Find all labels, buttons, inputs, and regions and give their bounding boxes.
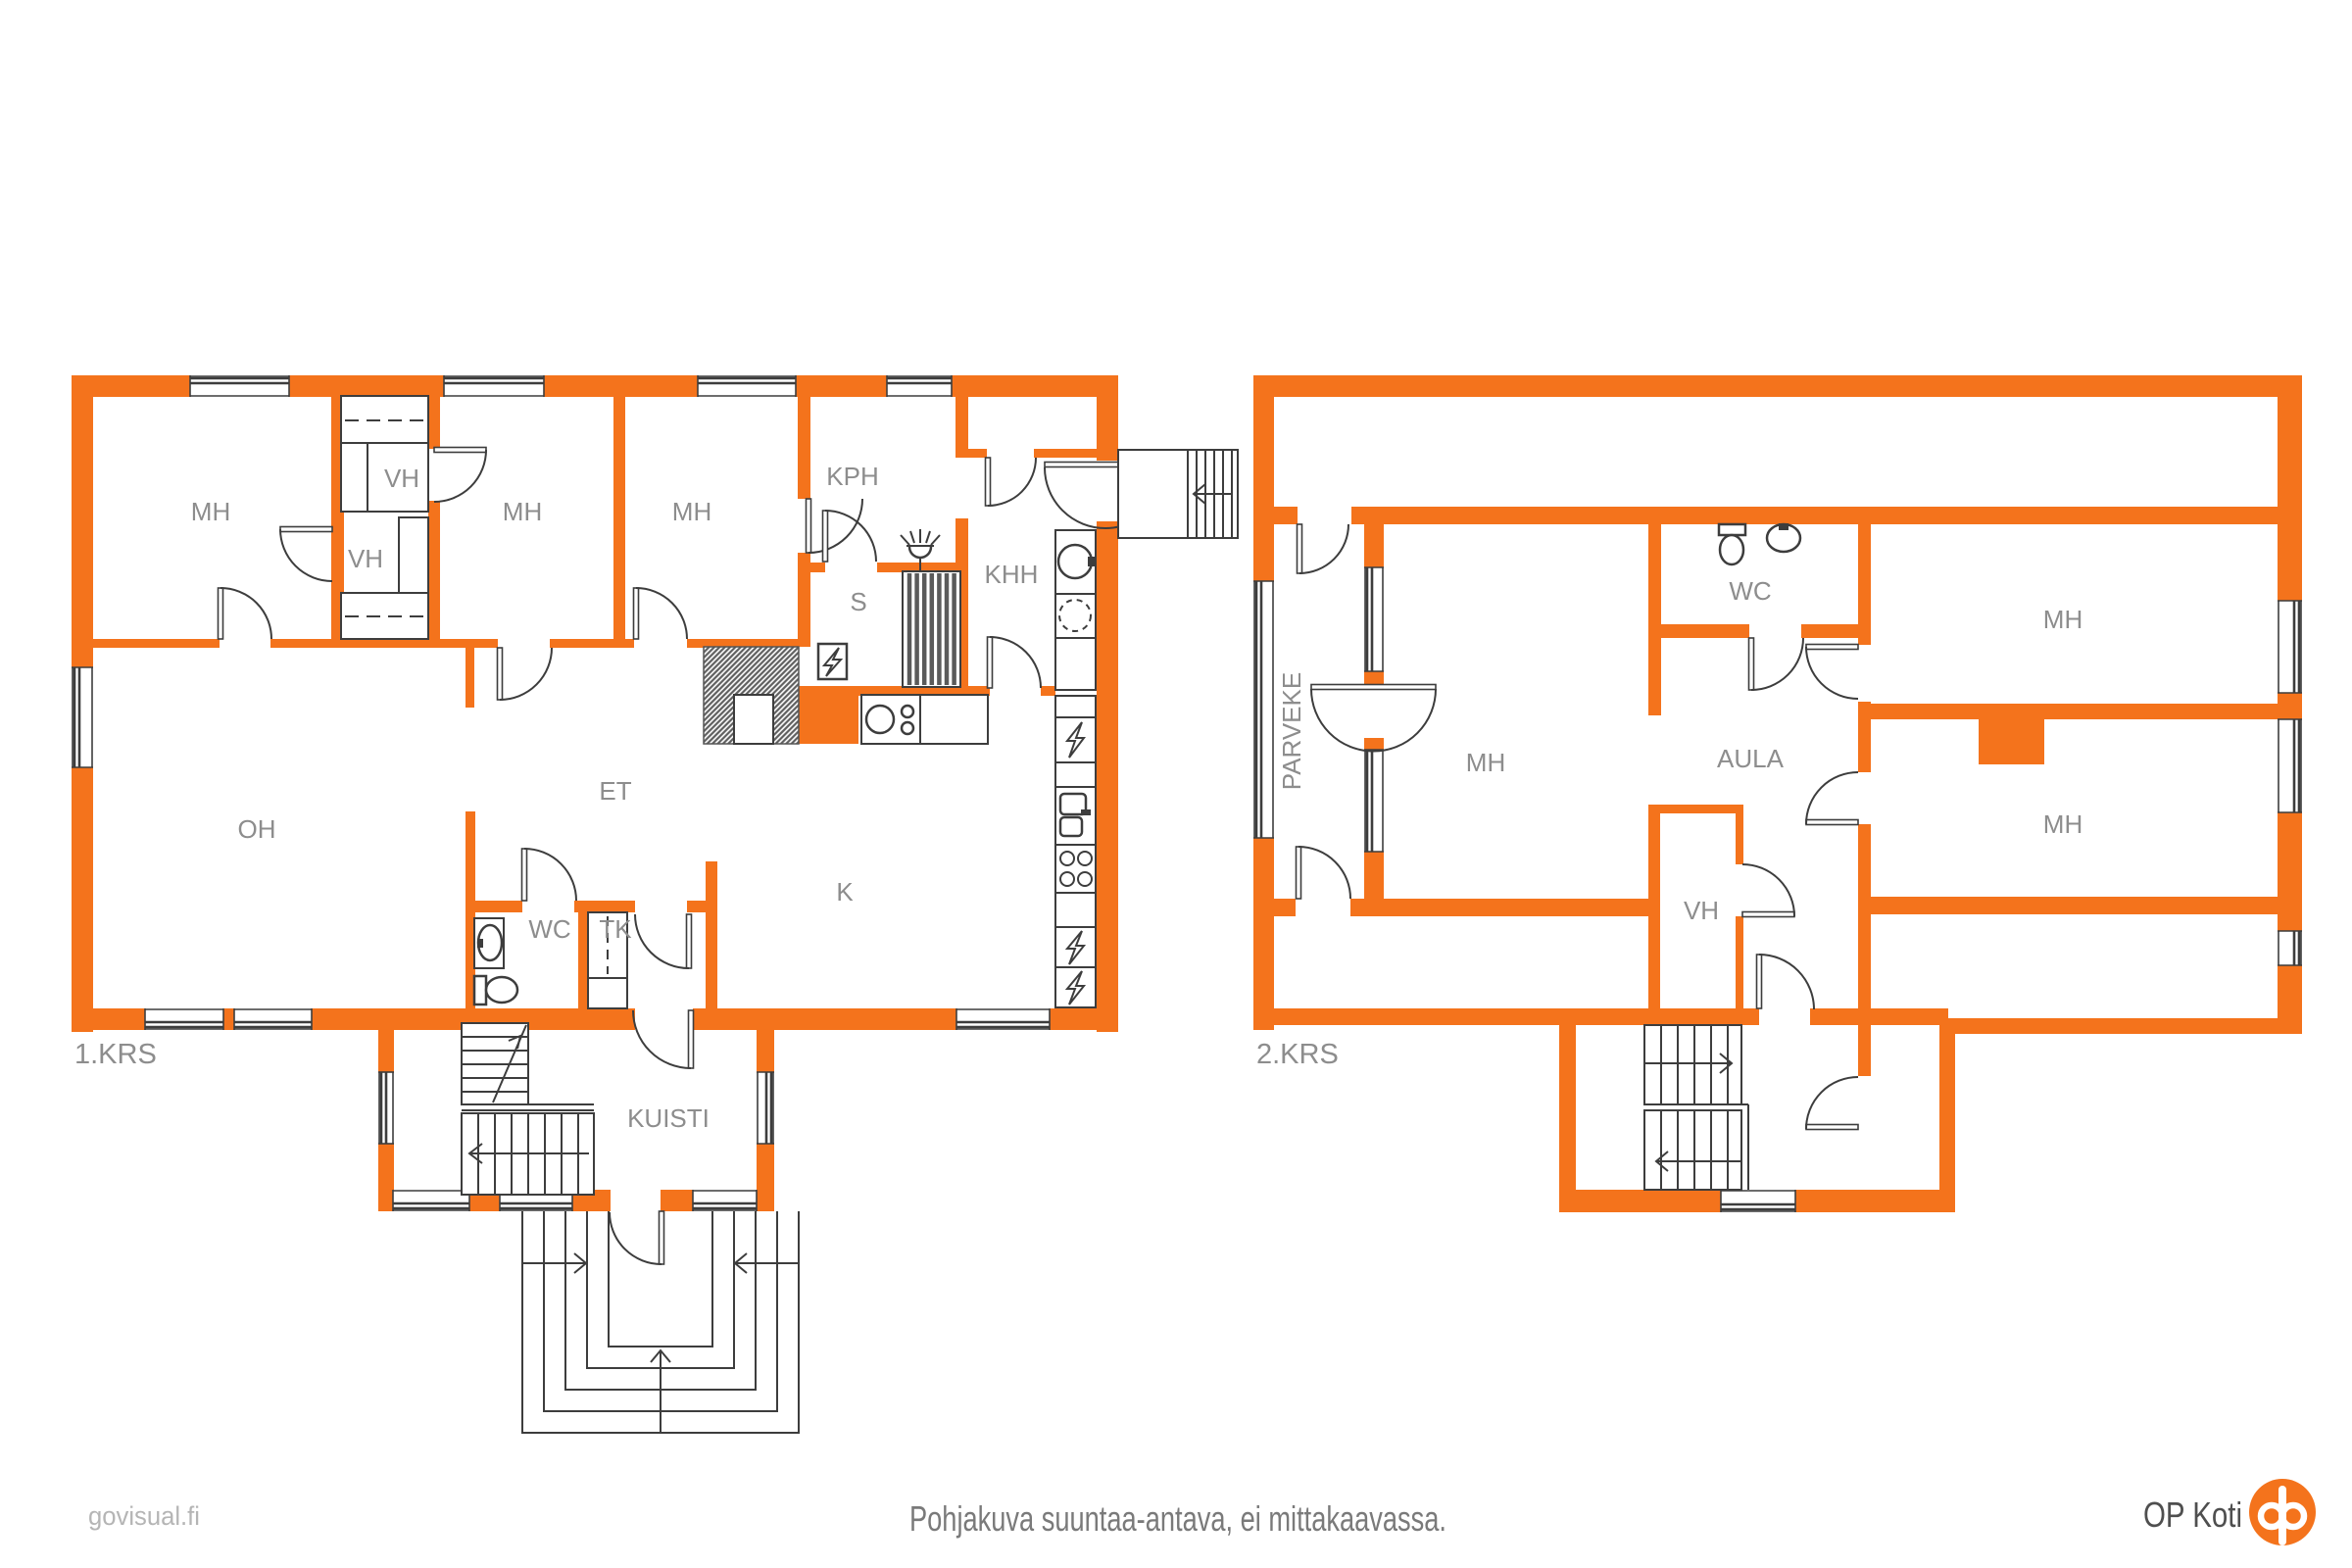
svg-text:MH: MH	[1466, 748, 1505, 777]
svg-text:VH: VH	[348, 544, 383, 573]
svg-text:MH: MH	[672, 497, 711, 526]
svg-text:MH: MH	[2043, 809, 2082, 839]
svg-text:MH: MH	[503, 497, 542, 526]
svg-text:KHH: KHH	[985, 560, 1039, 589]
svg-text:2.KRS: 2.KRS	[1256, 1039, 1339, 1070]
svg-text:1.KRS: 1.KRS	[74, 1039, 157, 1070]
svg-text:ET: ET	[599, 776, 631, 806]
svg-text:VH: VH	[384, 464, 419, 493]
svg-text:PARVEKE: PARVEKE	[1277, 672, 1306, 790]
svg-text:S: S	[850, 587, 866, 616]
svg-text:MH: MH	[2043, 605, 2082, 634]
svg-text:K: K	[836, 877, 854, 906]
svg-text:WC: WC	[528, 914, 570, 944]
svg-text:OP Koti: OP Koti	[2143, 1494, 2242, 1535]
svg-text:govisual.fi: govisual.fi	[88, 1501, 200, 1531]
svg-text:KUISTI: KUISTI	[627, 1103, 710, 1133]
svg-text:AULA: AULA	[1717, 744, 1785, 773]
svg-text:TK: TK	[599, 914, 632, 944]
svg-text:OH: OH	[238, 814, 276, 844]
svg-text:WC: WC	[1729, 576, 1771, 606]
svg-text:MH: MH	[191, 497, 230, 526]
svg-text:KPH: KPH	[826, 462, 878, 491]
svg-text:VH: VH	[1684, 896, 1719, 925]
svg-text:Pohjakuva suuntaa-antava, ei m: Pohjakuva suuntaa-antava, ei mittakaavas…	[909, 1498, 1446, 1539]
